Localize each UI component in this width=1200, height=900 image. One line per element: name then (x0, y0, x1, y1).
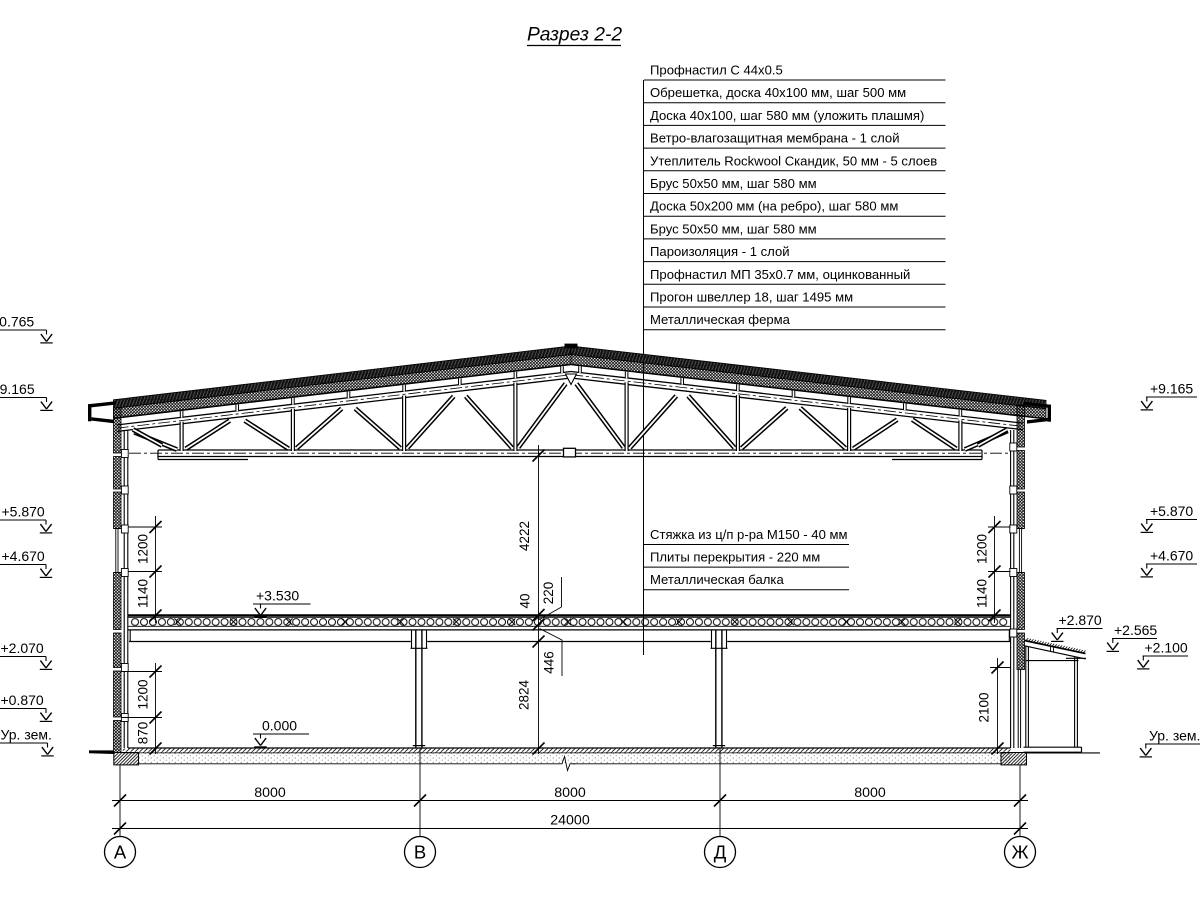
svg-text:+5.870: +5.870 (1150, 503, 1193, 519)
svg-text:2824: 2824 (517, 679, 532, 710)
svg-text:1200: 1200 (136, 679, 151, 709)
svg-text:Обрешетка, доска 40х100 мм, ша: Обрешетка, доска 40х100 мм, шаг 500 мм (650, 85, 906, 100)
svg-text:+2.070: +2.070 (1, 640, 44, 656)
svg-text:+9.165: +9.165 (1150, 381, 1193, 397)
svg-text:Ур. зем.: Ур. зем. (1149, 728, 1200, 744)
svg-text:1140: 1140 (975, 579, 990, 608)
svg-text:+2.100: +2.100 (1145, 640, 1188, 656)
svg-text:Металлическая ферма: Металлическая ферма (650, 312, 791, 327)
svg-text:Металлическая балка: Металлическая балка (650, 572, 784, 587)
svg-text:+10.765: +10.765 (0, 314, 34, 330)
svg-text:4222: 4222 (517, 521, 532, 551)
svg-text:Доска 50х200 мм (на ребро), ша: Доска 50х200 мм (на ребро), шаг 580 мм (650, 199, 898, 214)
svg-text:8000: 8000 (854, 785, 886, 801)
svg-text:+5.870: +5.870 (2, 504, 45, 520)
svg-text:+2.870: +2.870 (1059, 612, 1102, 628)
svg-text:Брус 50х50 мм, шаг 580 мм: Брус 50х50 мм, шаг 580 мм (650, 176, 817, 191)
svg-text:Профнастил МП 35х0.7 мм, оцинк: Профнастил МП 35х0.7 мм, оцинкованный (650, 267, 910, 282)
svg-text:+0.870: +0.870 (1, 692, 44, 708)
svg-text:1140: 1140 (136, 579, 151, 608)
svg-text:+2.565: +2.565 (1114, 622, 1157, 638)
svg-text:+4.670: +4.670 (2, 548, 45, 564)
svg-text:Плиты перекрытия - 220 мм: Плиты перекрытия - 220 мм (650, 550, 820, 565)
svg-text:1200: 1200 (136, 534, 151, 564)
svg-text:Доска 40х100, шаг 580 мм (улож: Доска 40х100, шаг 580 мм (уложить плашмя… (650, 108, 924, 123)
svg-text:Профнастил С 44х0.5: Профнастил С 44х0.5 (650, 63, 783, 78)
svg-text:+9.165: +9.165 (0, 381, 35, 397)
svg-text:8000: 8000 (554, 785, 586, 801)
svg-text:Д: Д (714, 842, 727, 863)
svg-text:Ж: Ж (1011, 842, 1028, 863)
svg-text:24000: 24000 (550, 813, 590, 829)
svg-text:Разрез 2-2: Разрез 2-2 (527, 25, 622, 46)
svg-text:446: 446 (542, 651, 557, 674)
svg-text:40: 40 (518, 593, 533, 608)
svg-text:Прогон швеллер 18, шаг 1495 мм: Прогон швеллер 18, шаг 1495 мм (650, 290, 853, 305)
svg-text:8000: 8000 (254, 785, 286, 801)
svg-text:Брус 50х50 мм, шаг 580 мм: Брус 50х50 мм, шаг 580 мм (650, 221, 817, 236)
svg-text:А: А (114, 842, 127, 863)
svg-text:2100: 2100 (977, 692, 992, 722)
svg-text:Утеплитель Rockwool Скандик, 5: Утеплитель Rockwool Скандик, 50 мм - 5 с… (650, 153, 937, 168)
svg-text:870: 870 (136, 722, 151, 745)
svg-text:Ур. зем.: Ур. зем. (1, 727, 52, 743)
svg-text:В: В (414, 842, 426, 863)
svg-text:220: 220 (541, 582, 556, 605)
svg-text:Пароизоляция - 1 слой: Пароизоляция - 1 слой (650, 244, 790, 259)
svg-text:0.000: 0.000 (262, 718, 297, 734)
svg-text:Ветро-влагозащитная мембрана -: Ветро-влагозащитная мембрана - 1 слой (650, 131, 900, 146)
svg-text:+3.530: +3.530 (256, 588, 299, 604)
svg-text:+4.670: +4.670 (1150, 548, 1193, 564)
svg-text:Стяжка из ц/п р-ра М150 - 40 м: Стяжка из ц/п р-ра М150 - 40 мм (650, 527, 848, 542)
svg-text:1200: 1200 (975, 534, 990, 564)
